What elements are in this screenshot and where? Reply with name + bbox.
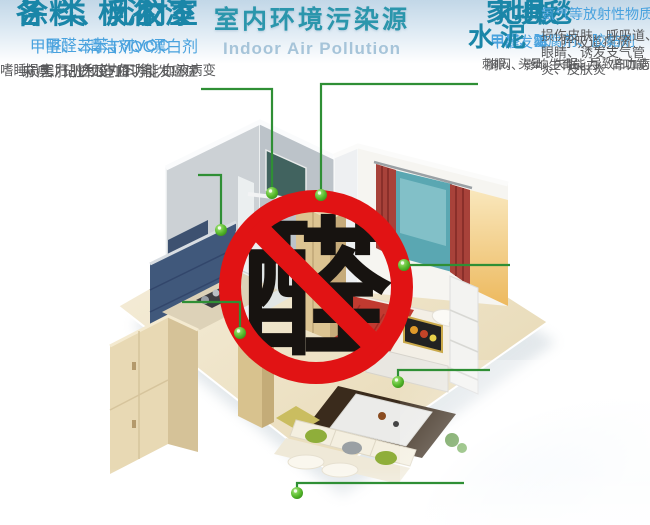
cupboard <box>110 316 198 474</box>
boards-pollutants: 甲醛、苯、TVOC <box>0 33 184 57</box>
cement-effects: 损伤皮肤、呼吸道、眼睛、诱发支气管炎、皮肤炎 <box>541 28 650 79</box>
green-pillow <box>375 451 397 465</box>
bottom-fade <box>0 468 650 525</box>
boards-heading: 各类板材 <box>0 0 196 29</box>
prohibition-sign: 醛 <box>230 201 402 380</box>
cement-pollutants: 氨气等放射性物质 <box>541 4 650 24</box>
label-boards: 各类板材 甲醛、苯、TVOC 损害肝脏和造血功能 <box>0 0 184 81</box>
cement-heading: 水泥 <box>468 24 532 79</box>
label-cement: 水泥 氨气等放射性物质 损伤皮肤、呼吸道、眼睛、诱发支气管炎、皮肤炎 <box>468 0 650 79</box>
boards-effects: 损害肝脏和造血功能 <box>0 60 184 81</box>
gray-pillow <box>342 442 362 455</box>
curtain-right <box>450 184 470 286</box>
green-pillow <box>305 429 327 443</box>
